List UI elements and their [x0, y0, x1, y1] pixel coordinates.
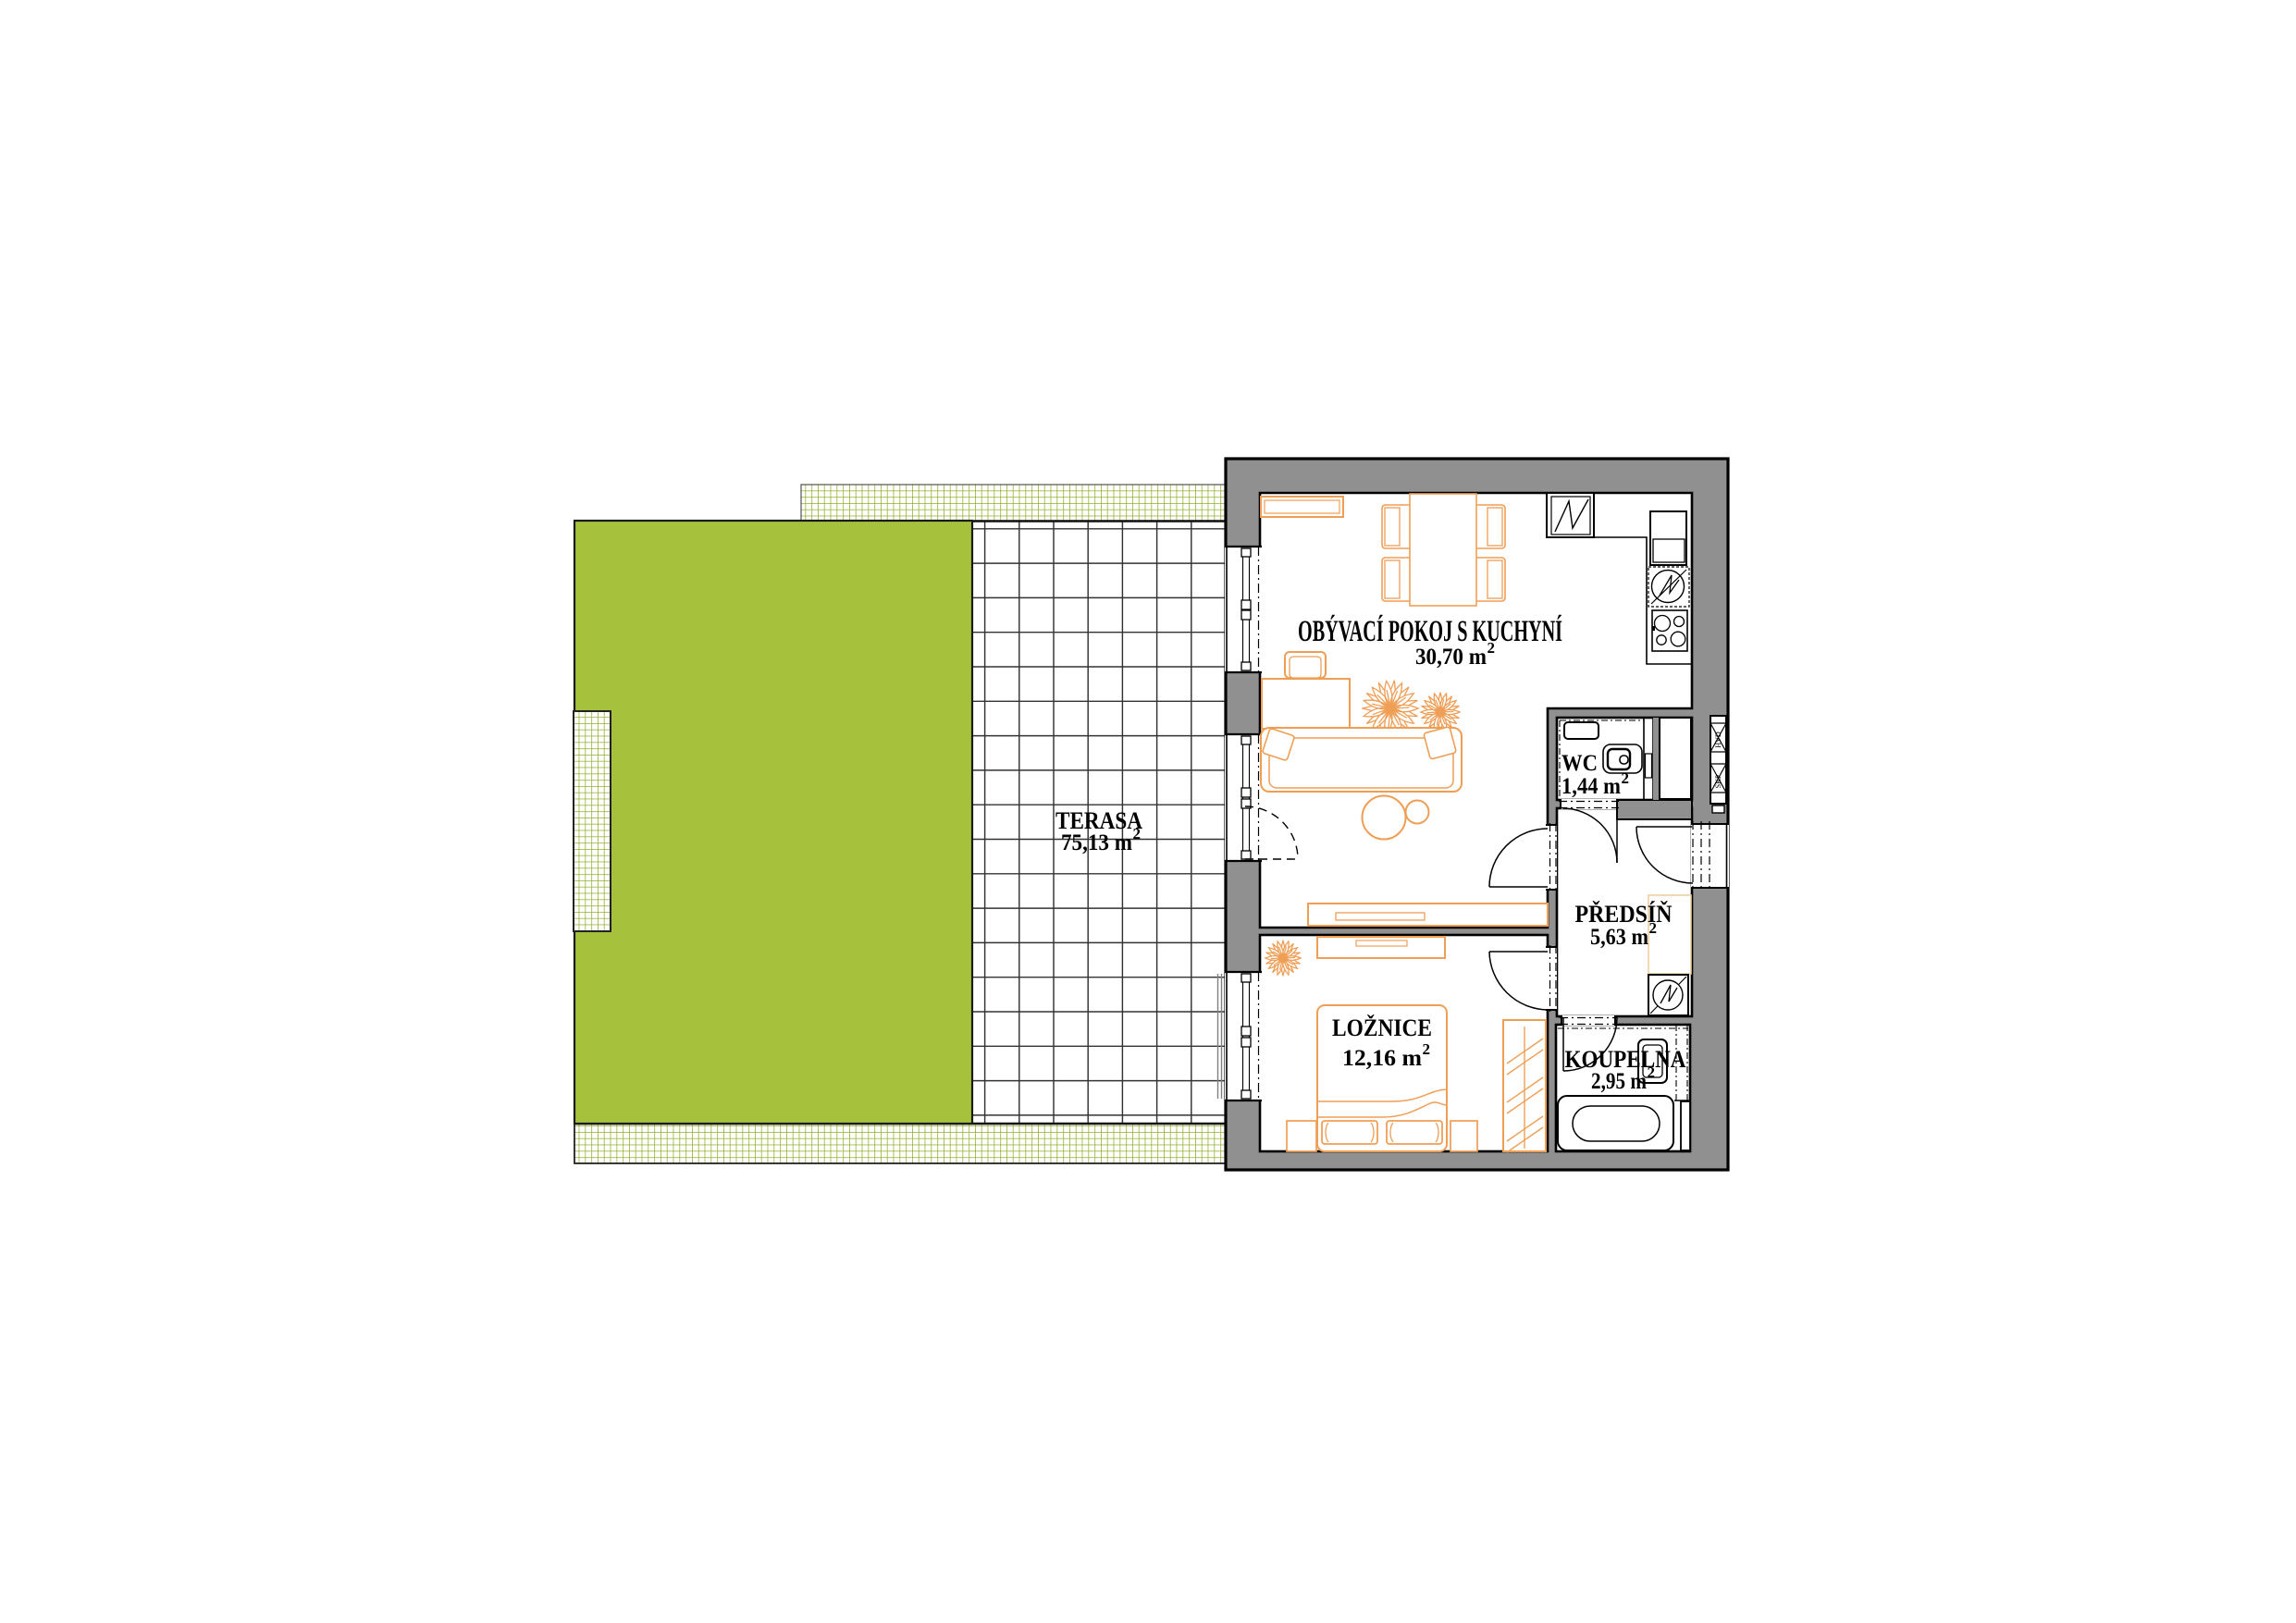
svg-text:30,70 m: 30,70 m — [1415, 645, 1487, 670]
svg-text:2: 2 — [1487, 639, 1496, 657]
svg-text:2: 2 — [1648, 1064, 1656, 1081]
svg-text:PŘEDSÍŇ: PŘEDSÍŇ — [1575, 901, 1673, 928]
svg-text:2: 2 — [1649, 919, 1658, 937]
svg-text:LOŽNICE: LOŽNICE — [1332, 1014, 1432, 1041]
svg-text:SKP: SKP — [1714, 774, 1722, 788]
svg-text:5,63 m: 5,63 m — [1590, 925, 1648, 950]
svg-text:2: 2 — [1133, 825, 1142, 842]
svg-text:75,13 m: 75,13 m — [1061, 830, 1132, 855]
svg-text:HVD: HVD — [1714, 732, 1722, 748]
svg-text:12,16 m: 12,16 m — [1342, 1046, 1422, 1071]
svg-text:2: 2 — [1622, 769, 1630, 787]
svg-text:1,44 m: 1,44 m — [1562, 774, 1621, 799]
svg-text:2: 2 — [1423, 1040, 1431, 1058]
svg-text:OBÝVACÍ POKOJ S KUCHYNÍ: OBÝVACÍ POKOJ S KUCHYNÍ — [1298, 614, 1562, 648]
svg-text:2,95 m: 2,95 m — [1591, 1069, 1647, 1094]
svg-text:WC: WC — [1562, 751, 1598, 776]
